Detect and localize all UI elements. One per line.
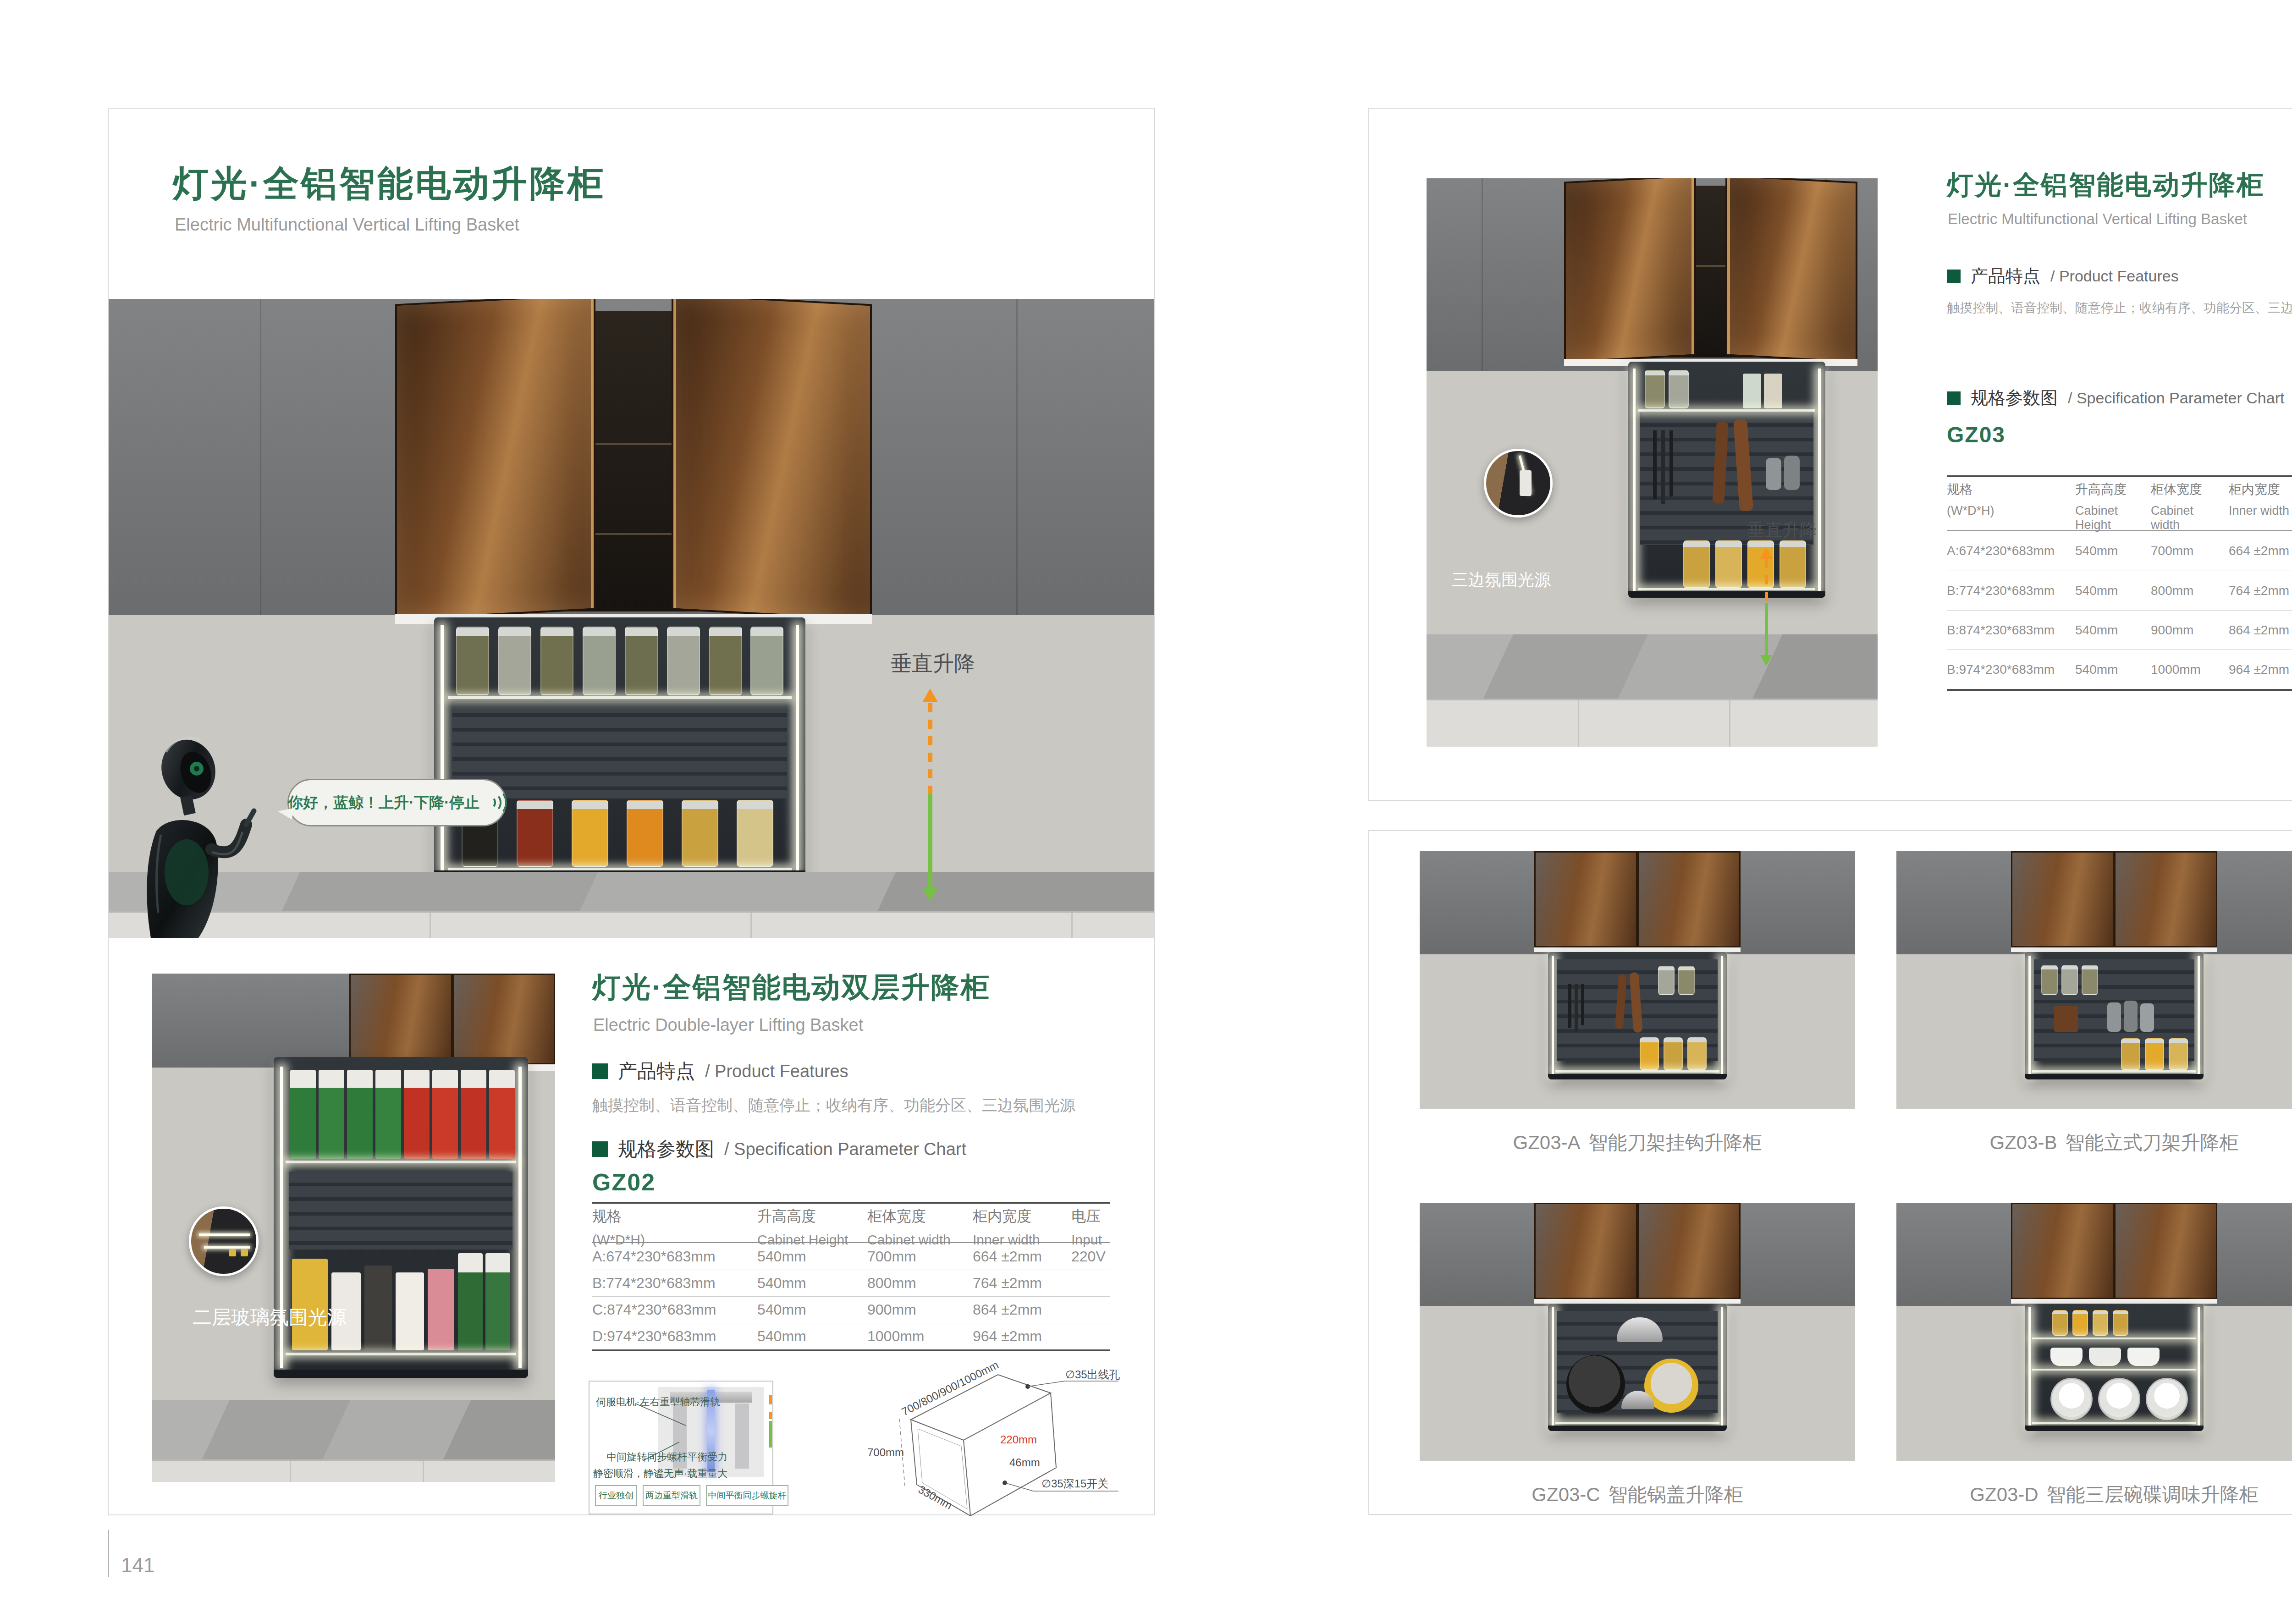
spec-table-gz03: 规格(W*D*H) 升高高度Cabinet Height 柜体宽度Cabinet… xyxy=(1947,475,2292,691)
right-page-top-card: 三边氛围光源 垂直升降 灯光·全铝智能电动升降柜 Electric Multif… xyxy=(1368,108,2292,801)
voice-command-text: 你好，蓝鲸！上升·下降·停止 xyxy=(288,793,479,813)
left-page-title: 灯光·全铝智能电动升降柜 xyxy=(173,160,606,208)
dim-offset: 46mm xyxy=(1009,1456,1040,1469)
sound-waves-icon xyxy=(486,791,506,815)
spec-table-gz02: 规格(W*D*H) 升高高度Cabinet Height 柜体宽度Cabinet… xyxy=(592,1202,1110,1351)
variant-photo-gz03d xyxy=(1896,1203,2292,1461)
dim-outlet-hole: ∅35出线孔 xyxy=(1065,1367,1120,1382)
variant-caption: GZ03-B智能立式刀架升降柜 xyxy=(1896,1130,2292,1156)
dimension-diagram: 700/800/900/1000mm ∅35出线孔 700mm 220mm 46… xyxy=(867,1365,1124,1516)
arrow-down-icon xyxy=(922,887,938,901)
features-heading: 产品特点 / Product Features xyxy=(1947,264,2179,288)
section-bullet-icon xyxy=(1947,270,1961,283)
vertical-lift-photo: 三边氛围光源 垂直升降 xyxy=(1427,178,1878,747)
variant-photo-gz03b xyxy=(1896,851,2292,1109)
lifting-rack xyxy=(434,617,805,879)
cabinet-door-right xyxy=(672,299,872,620)
features-heading: 产品特点 / Product Features xyxy=(592,1058,848,1084)
cabinet-wireframe xyxy=(867,1365,1124,1516)
lift-direction-label: 垂直升降 xyxy=(891,650,975,678)
double-layer-title: 灯光·全铝智能电动双层升降柜 xyxy=(592,968,991,1007)
spec-heading: 规格参数图 / Specification Parameter Chart xyxy=(1947,386,2284,410)
feature-chip: 中间平衡同步螺旋杆 xyxy=(706,1485,788,1506)
photo-label: 三边氛围光源 xyxy=(1452,569,1551,591)
robot-assistant xyxy=(143,734,267,938)
lifting-rack xyxy=(1628,362,1825,598)
double-layer-subtitle: Electric Double-layer Lifting Basket xyxy=(593,1015,863,1035)
detail-callout-circle xyxy=(1484,449,1553,517)
features-text: 触摸控制、语音控制、随意停止；收纳有序、功能分区、三边氛围光源 xyxy=(592,1095,1075,1116)
table-row: A:674*230*683mm 540mm 700mm 664 ±2mm 220… xyxy=(1947,531,2292,571)
open-wall-cabinet xyxy=(1564,178,1857,359)
led-strip xyxy=(441,625,444,871)
dim-inner-depth: 220mm xyxy=(1000,1433,1037,1446)
spec-heading: 规格参数图 / Specification Parameter Chart xyxy=(592,1136,966,1162)
section-bullet-icon xyxy=(592,1141,608,1157)
dim-height: 700mm xyxy=(867,1446,904,1459)
page-number-left: 141 xyxy=(121,1554,154,1577)
open-wall-cabinet xyxy=(395,299,872,615)
voice-speech-bubble: 你好，蓝鲸！上升·下降·停止 xyxy=(287,779,507,826)
black-pan xyxy=(1566,1355,1625,1414)
table-row: C:874*230*683mm 540mm 900mm 864 ±2mm xyxy=(592,1296,1110,1323)
detail-callout-circle xyxy=(189,1206,259,1276)
table-row: B:874*230*683mm 540mm 900mm 864 ±2mm xyxy=(1947,610,2292,650)
mechanism-callout-top: 伺服电机·左右重型轴芯滑轨 xyxy=(596,1395,720,1409)
lift-direction-label: 垂直升降 xyxy=(1747,518,1817,542)
catalog-spread: 灯光·全铝智能电动升降柜 Electric Multifunctional Ve… xyxy=(0,0,2292,1624)
arrow-down-icon xyxy=(1760,655,1772,666)
table-row: B:774*230*683mm 540mm 800mm 764 ±2mm xyxy=(1947,571,2292,610)
feature-chip: 两边重型滑轨 xyxy=(643,1485,700,1506)
wall-cabinet xyxy=(349,974,555,1064)
right-page-variant-card: GZ03-A智能刀架挂钩升降柜 xyxy=(1368,830,2292,1515)
left-page-subtitle: Electric Multifunctional Vertical Liftin… xyxy=(175,215,519,235)
table-row: B:974*230*683mm 540mm 1000mm 964 ±2mm xyxy=(1947,650,2292,689)
mechanism-callout-bottom: 中间旋转同步螺杆平衡受力 静密顺滑，静谧无声·载重量大 xyxy=(593,1450,727,1481)
variant-caption: GZ03-A智能刀架挂钩升降柜 xyxy=(1420,1130,1855,1156)
table-header-row: 规格(W*D*H) 升高高度Cabinet Height 柜体宽度Cabinet… xyxy=(592,1204,1110,1243)
features-text: 触摸控制、语音控制、随意停止；收纳有序、功能分区、三边氛围光源 xyxy=(1947,299,2292,317)
feature-chip: 行业独创 xyxy=(595,1485,637,1506)
variant-caption: GZ03-C智能锅盖升降柜 xyxy=(1420,1482,1855,1508)
mechanism-detail-box: 伺服电机·左右重型轴芯滑轨 中间旋转同步螺杆平衡受力 静密顺滑，静谧无声·载重量… xyxy=(589,1381,773,1514)
double-layer-photo-label: 二层玻璃氛围光源 xyxy=(193,1305,347,1330)
variant-photo-gz03c xyxy=(1420,1203,1855,1461)
page-edge-rule xyxy=(108,1530,109,1577)
table-row: B:774*230*683mm 540mm 800mm 764 ±2mm xyxy=(592,1270,1110,1296)
right-page-title: 灯光·全铝智能电动升降柜 xyxy=(1947,167,2264,203)
section-bullet-icon xyxy=(1947,391,1961,405)
arrow-up-icon xyxy=(922,688,938,702)
table-header-row: 规格(W*D*H) 升高高度Cabinet Height 柜体宽度Cabinet… xyxy=(1947,477,2292,531)
table-row: D:974*230*683mm 540mm 1000mm 964 ±2mm xyxy=(592,1323,1110,1349)
hero-photo: 你好，蓝鲸！上升·下降·停止 垂直升降 xyxy=(109,299,1154,938)
left-page-card: 灯光·全铝智能电动升降柜 Electric Multifunctional Ve… xyxy=(108,108,1155,1515)
section-bullet-icon xyxy=(592,1063,608,1079)
cabinet-door-left xyxy=(395,299,595,620)
led-strip xyxy=(796,625,799,871)
arrow-up-icon xyxy=(1760,548,1772,559)
dim-switch: ∅35深15开关 xyxy=(1041,1476,1108,1491)
right-page-subtitle: Electric Multifunctional Vertical Liftin… xyxy=(1948,210,2247,228)
variant-caption: GZ03-D智能三层碗碟调味升降柜 xyxy=(1896,1482,2292,1508)
model-code: GZ02 xyxy=(592,1168,656,1196)
model-code: GZ03 xyxy=(1947,422,2005,447)
variant-photo-gz03a xyxy=(1420,851,1855,1109)
double-layer-photo: 二层玻璃氛围光源 xyxy=(152,974,555,1482)
